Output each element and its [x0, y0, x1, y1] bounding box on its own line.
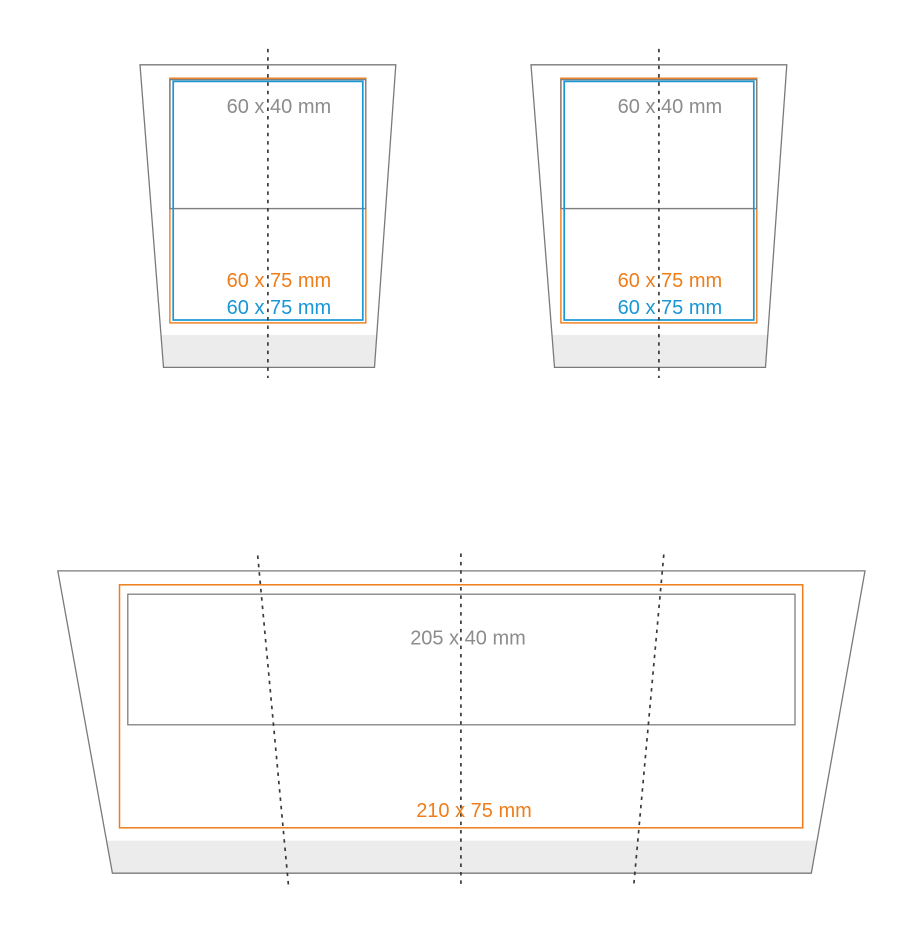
svg-text:60 x 40 mm: 60 x 40 mm	[227, 96, 331, 118]
svg-text:210 x 75 mm: 210 x 75 mm	[416, 800, 532, 822]
svg-text:60 x 75 mm: 60 x 75 mm	[618, 270, 722, 292]
svg-text:60 x 75 mm: 60 x 75 mm	[227, 297, 331, 319]
svg-text:205 x 40 mm: 205 x 40 mm	[410, 628, 526, 650]
svg-text:60 x 75 mm: 60 x 75 mm	[227, 270, 331, 292]
svg-text:60 x 75 mm: 60 x 75 mm	[618, 297, 722, 319]
svg-text:60 x 40 mm: 60 x 40 mm	[618, 96, 722, 118]
